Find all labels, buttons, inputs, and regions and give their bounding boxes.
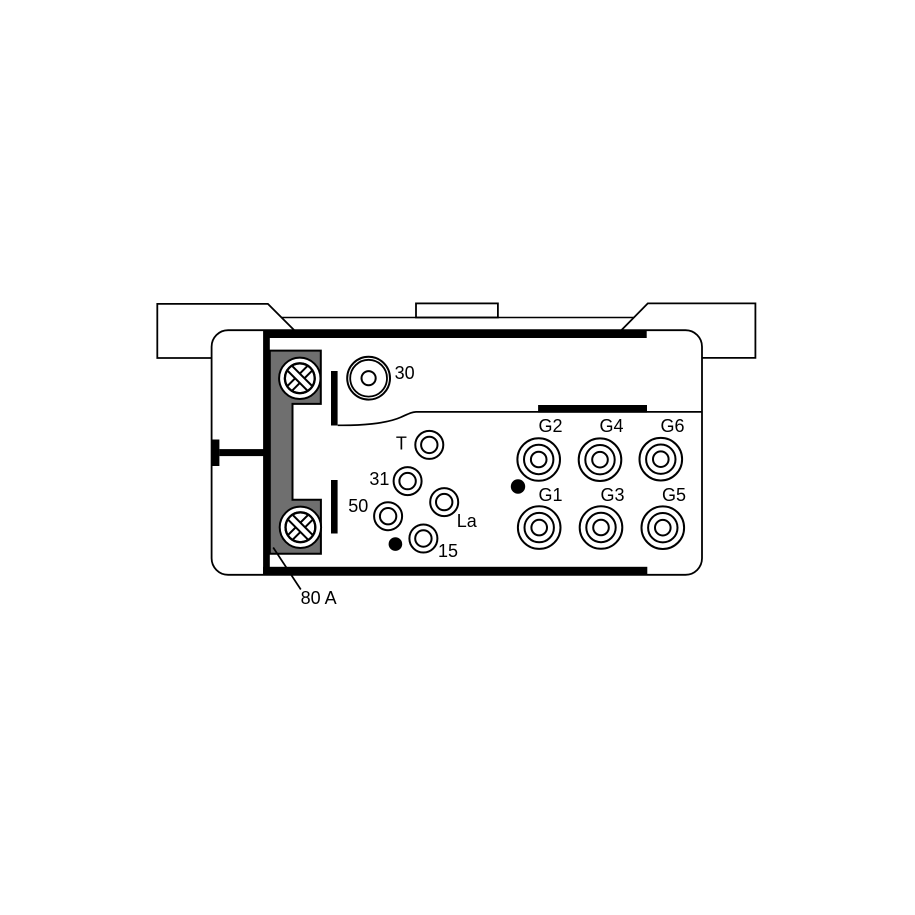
- svg-text:G3: G3: [601, 485, 625, 505]
- svg-text:G2: G2: [539, 416, 563, 436]
- svg-text:80 A: 80 A: [301, 588, 337, 608]
- svg-text:G5: G5: [662, 485, 686, 505]
- svg-text:La: La: [457, 511, 478, 531]
- svg-text:30: 30: [395, 363, 415, 383]
- svg-text:G6: G6: [661, 416, 685, 436]
- svg-text:T: T: [396, 434, 407, 454]
- svg-text:G4: G4: [600, 416, 624, 436]
- svg-text:15: 15: [438, 541, 458, 561]
- svg-text:50: 50: [348, 496, 368, 516]
- svg-text:31: 31: [369, 469, 389, 489]
- svg-text:G1: G1: [539, 485, 563, 505]
